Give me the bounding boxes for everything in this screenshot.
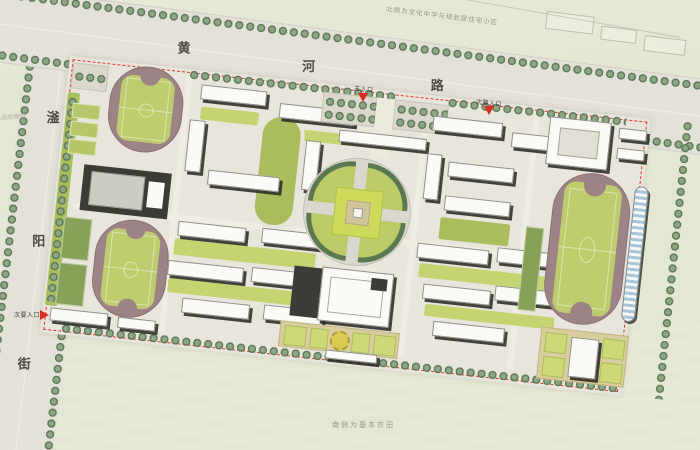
tennis-court <box>55 262 87 307</box>
site-plan: 北侧为文化中学与规划居住宅小区 滏 阳 街 人民检察院 黄 河 路 <box>0 0 700 450</box>
south-note: 南侧为基本农田 <box>332 420 395 430</box>
street-name-char: 滏 <box>47 107 60 126</box>
northeast-entrance-arrow <box>484 106 494 115</box>
central-plaza <box>297 152 416 271</box>
basketball-court <box>71 103 100 121</box>
library-building <box>289 264 394 328</box>
road-name-char: 黄 <box>177 38 190 57</box>
basketball-court <box>67 138 96 156</box>
west-entrance-label: 次要入口 <box>14 310 40 319</box>
parking-lot <box>71 62 110 92</box>
west-entrance-arrow <box>40 310 49 320</box>
street-name-char: 街 <box>18 353 31 372</box>
plaza-monument <box>352 207 363 218</box>
tennis-court <box>60 216 92 261</box>
entrance-parking-west <box>320 92 377 128</box>
building <box>567 337 599 380</box>
gymnasium-building <box>545 116 612 170</box>
stadium-field <box>551 180 623 317</box>
road-name-char: 路 <box>431 75 444 94</box>
auditorium-building <box>79 164 171 219</box>
street-name-char: 阳 <box>32 230 45 249</box>
basketball-court <box>69 120 98 138</box>
sports-field <box>99 227 161 310</box>
garden-flower-medallion <box>329 330 351 352</box>
road-name-char: 河 <box>302 56 315 75</box>
main-entrance-arrow <box>358 93 368 102</box>
southeast-garden <box>536 327 629 388</box>
